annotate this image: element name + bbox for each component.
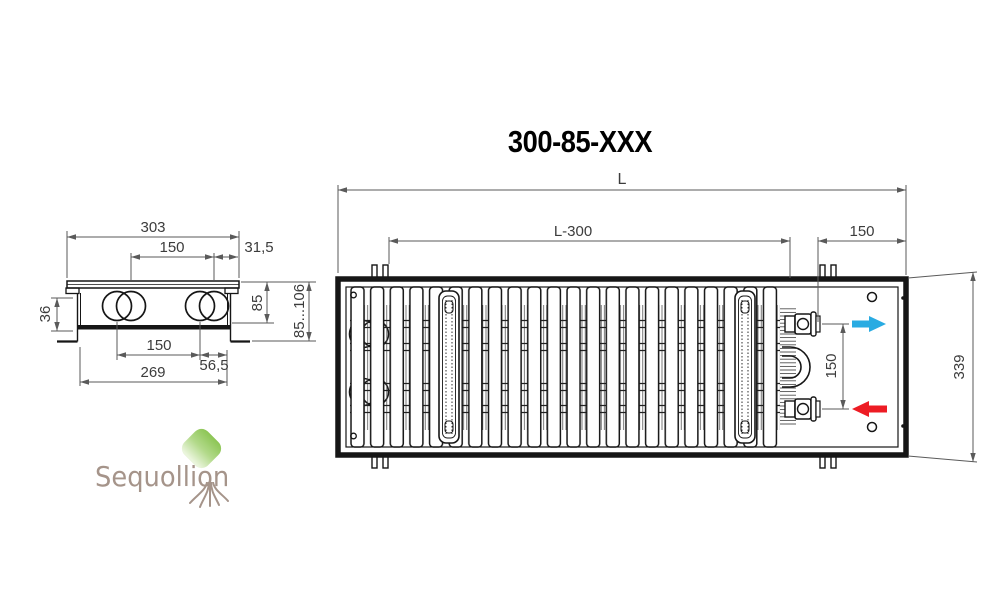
dim-pipe-spacing-top: 150 (159, 239, 184, 256)
brand-logo: Sequollion (95, 424, 285, 524)
dim-connection-spacing: 150 (823, 353, 840, 378)
dim-top-edge-offset: 31,5 (244, 239, 273, 256)
model-title: 300-85-XXX (448, 124, 712, 160)
roll-up-grille (348, 286, 780, 448)
dim-end-offset: 150 (849, 223, 874, 240)
side-section-view: 303 150 31,5 36 85 85...106 150 (20, 210, 320, 390)
drawing-sheet: 300-85-XXX (0, 0, 1000, 600)
dim-top-width: 303 (140, 219, 165, 236)
dim-total-length: L (618, 171, 627, 188)
supply-connection-fitting (785, 312, 820, 336)
side-view-dimensions: 303 150 31,5 36 85 85...106 150 (37, 219, 316, 386)
dim-inlet-height: 36 (37, 306, 54, 323)
pipe-circles (103, 292, 229, 321)
return-connection-fitting (785, 397, 820, 421)
dim-bottom-width: 269 (140, 364, 165, 381)
dim-width: 339 (951, 354, 968, 379)
dim-bottom-edge-offset: 56,5 (199, 357, 228, 374)
body-bottom-plate (77, 325, 231, 330)
dim-body-height: 85 (249, 295, 266, 312)
top-plan-view: L L-300 150 150 339 (330, 160, 1000, 490)
convector-body (57, 293, 250, 342)
dim-pipe-spacing-bottom: 150 (146, 337, 171, 354)
dim-install-height-range: 85...106 (291, 284, 308, 338)
dim-inner-length: L-300 (554, 223, 592, 240)
brand-wordmark: Sequollion (95, 460, 229, 493)
